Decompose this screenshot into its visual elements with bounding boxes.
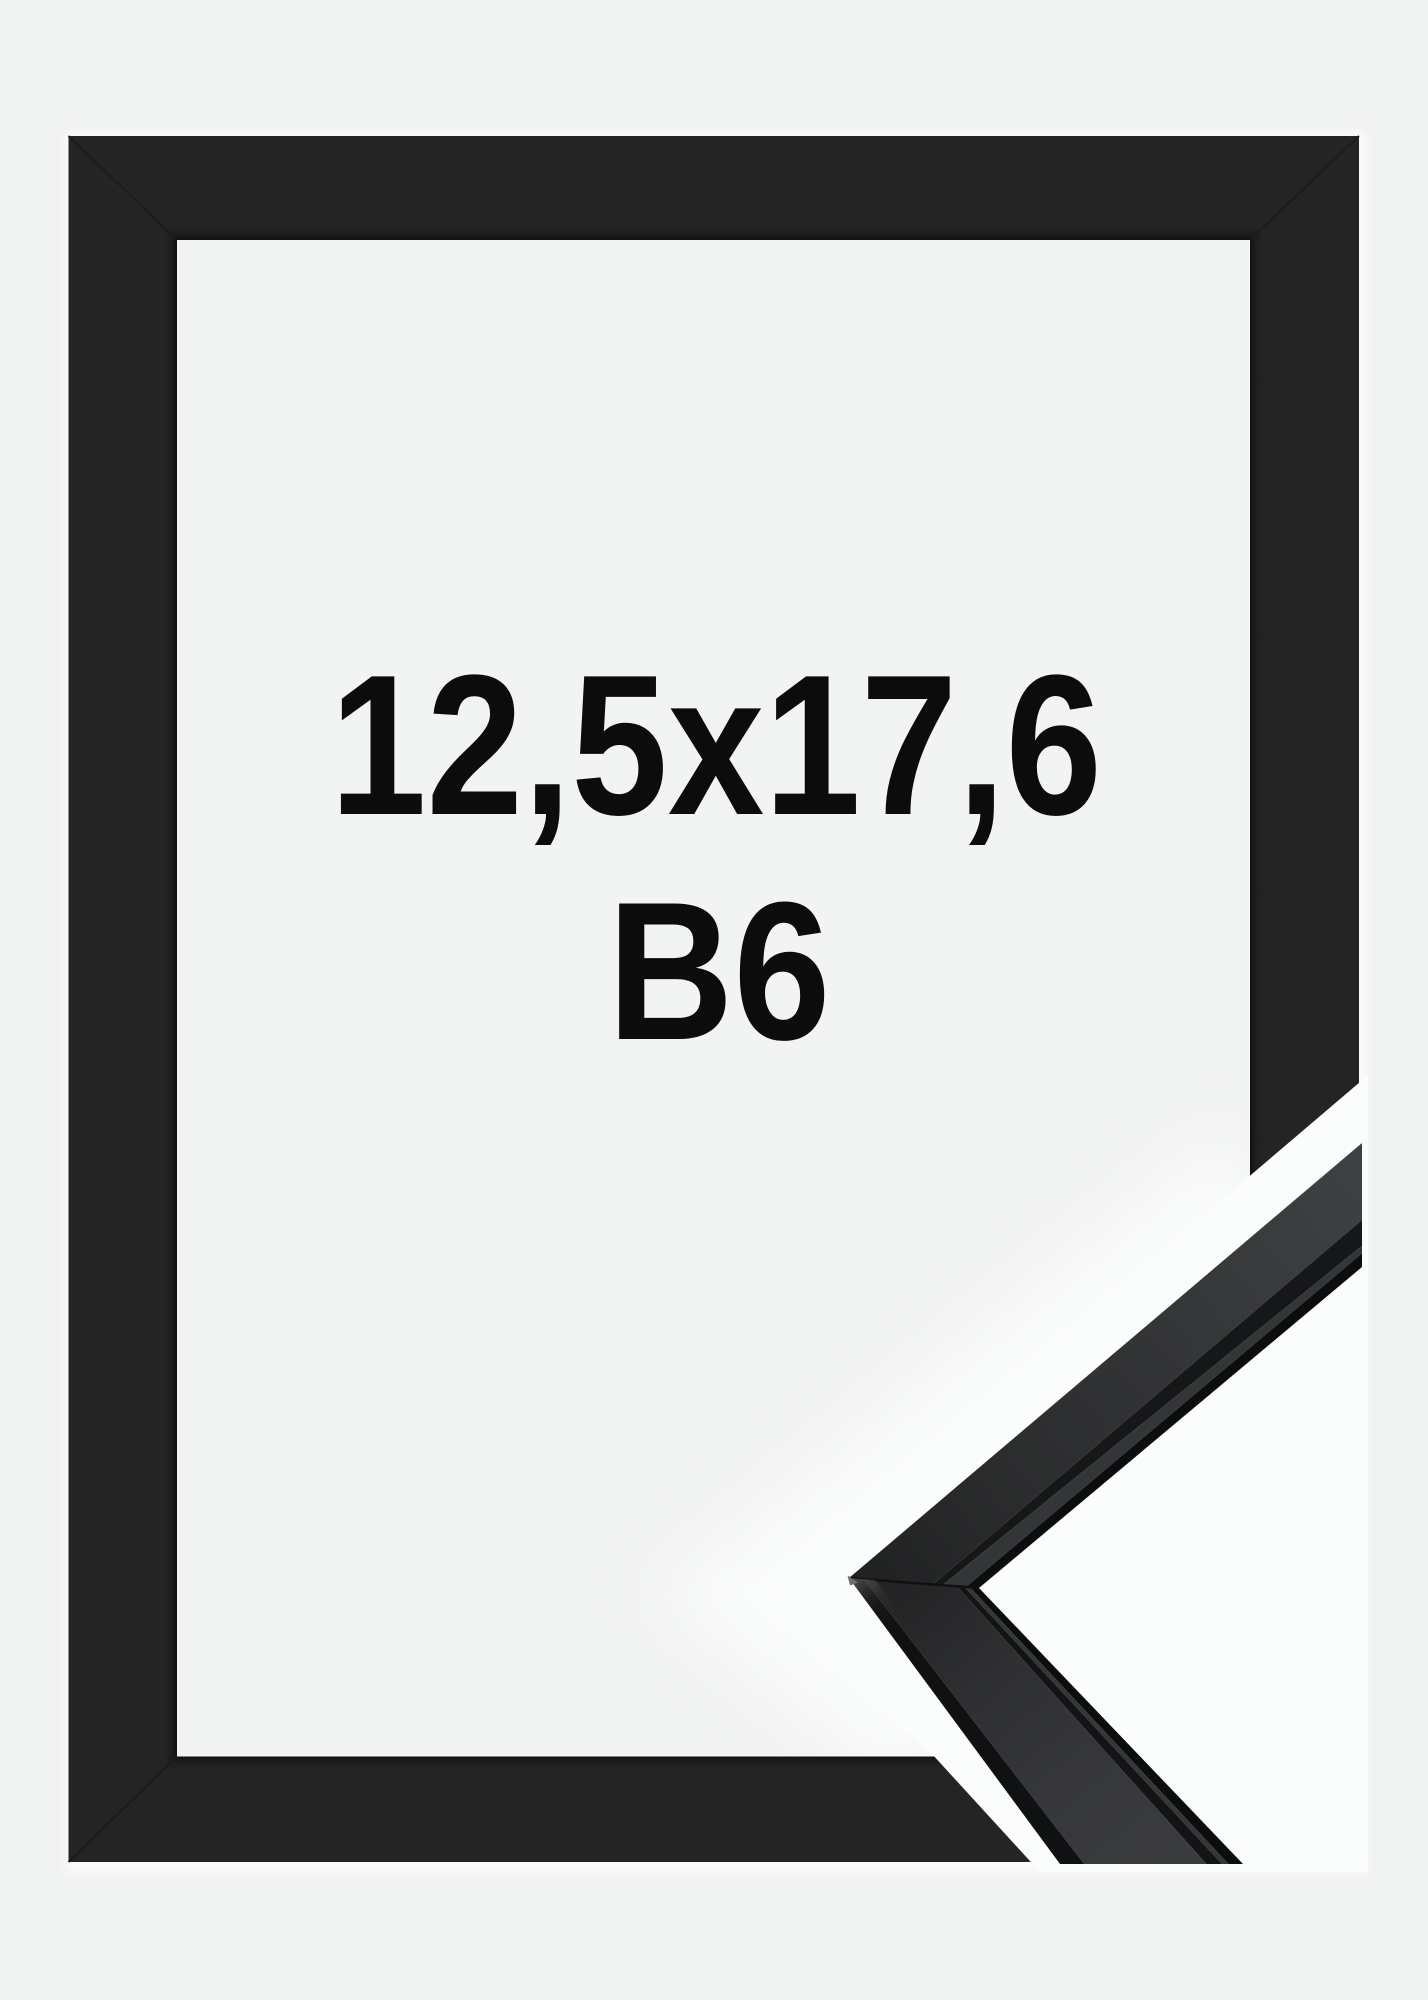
svg-text:12,5x17,6: 12,5x17,6 — [330, 634, 1102, 857]
svg-text:B6: B6 — [608, 861, 831, 1081]
